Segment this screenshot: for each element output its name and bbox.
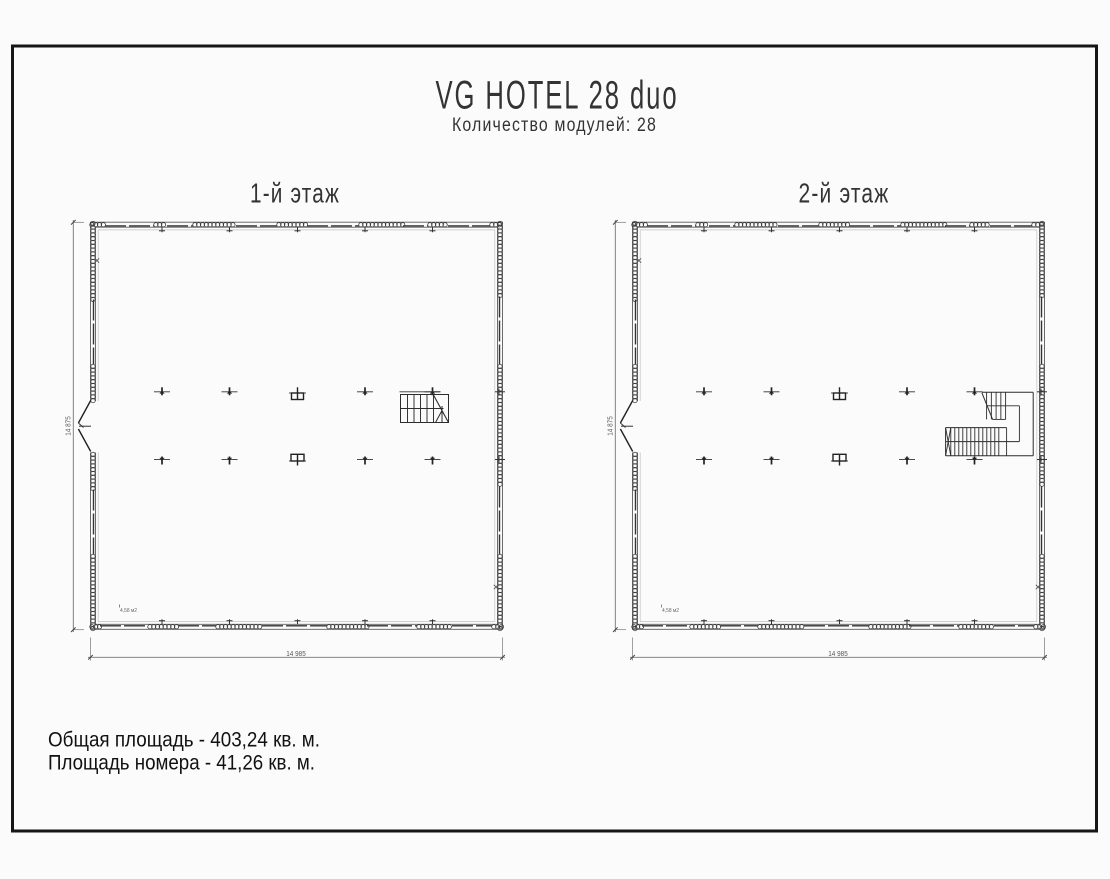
svg-text:2-й этаж: 2-й этаж (799, 178, 890, 209)
svg-text:Количество модулей: 28: Количество модулей: 28 (452, 115, 657, 136)
svg-text:1-й этаж: 1-й этаж (250, 178, 340, 209)
svg-text:14 985: 14 985 (828, 651, 848, 658)
svg-text:4,58 м2: 4,58 м2 (120, 608, 137, 614)
svg-text:Общая площадь - 403,24 кв. м.: Общая площадь - 403,24 кв. м. (48, 729, 320, 752)
svg-text:Площадь номера - 41,26 кв. м.: Площадь номера - 41,26 кв. м. (48, 752, 315, 775)
svg-text:4,58 м2: 4,58 м2 (662, 608, 679, 614)
svg-text:VG HOTEL 28 duo: VG HOTEL 28 duo (436, 74, 679, 118)
svg-text:14 875: 14 875 (66, 416, 73, 436)
svg-text:14 875: 14 875 (608, 416, 615, 436)
svg-text:14 985: 14 985 (286, 651, 306, 658)
